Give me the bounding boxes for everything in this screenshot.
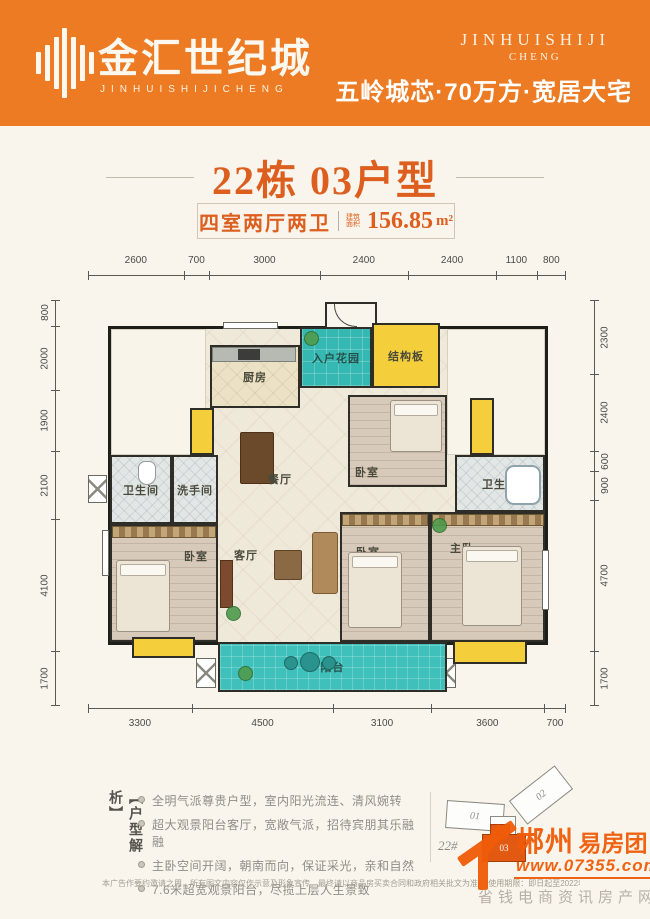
bullet-marker-icon bbox=[138, 796, 145, 803]
dim-value: 2600 bbox=[125, 255, 147, 266]
tv-cabinet bbox=[220, 560, 233, 608]
watermark-brand-part2: 易房团 bbox=[578, 830, 647, 856]
dimension-strip-left: 80020001900210041001700 bbox=[34, 300, 56, 706]
room-label: 卧室 bbox=[184, 548, 208, 564]
balcony-table-icon bbox=[300, 652, 320, 672]
dim-value: 3000 bbox=[253, 255, 275, 266]
dim-segment: 700 bbox=[184, 254, 210, 276]
area-caption-line2: 面积 bbox=[346, 221, 360, 228]
building-logo-icon bbox=[36, 24, 94, 102]
dim-value: 2400 bbox=[353, 255, 375, 266]
dim-segment: 2400 bbox=[594, 374, 616, 451]
bullet-text: 主卧空间开阔，朝南而向，保证采光，亲和自然 bbox=[152, 857, 415, 874]
window-left bbox=[102, 530, 109, 576]
analysis-bullet: 主卧空间开阔，朝南而向，保证采光，亲和自然 bbox=[138, 857, 426, 874]
plant-icon bbox=[304, 331, 319, 346]
dim-segment: 800 bbox=[537, 254, 566, 276]
brand-line2: CHENG bbox=[461, 51, 610, 63]
analysis-bullet: 超大观景阳台客厅，宽敞气派，招待宾朋其乐融融 bbox=[138, 816, 426, 850]
header-banner: 金汇世纪城 JINHUISHIJICHENG JINHUISHIJI CHENG… bbox=[0, 0, 650, 126]
bed-top-bedroom bbox=[390, 400, 442, 452]
dim-segment: 900 bbox=[594, 471, 616, 500]
dim-segment: 1700 bbox=[34, 651, 56, 706]
dim-value: 2400 bbox=[600, 402, 611, 424]
flower-box-left bbox=[132, 637, 195, 658]
bed-master-bedroom bbox=[462, 546, 522, 626]
window-right bbox=[542, 550, 549, 610]
ac-unit-bottom-left-icon bbox=[196, 658, 216, 688]
unit-summary-box: 四室两厅两卫 建筑 面积 156.85 m² bbox=[197, 203, 455, 239]
area-unit: m² bbox=[436, 213, 453, 230]
advert-page: 金汇世纪城 JINHUISHIJICHENG JINHUISHIJI CHENG… bbox=[0, 0, 650, 919]
dimension-strip-bottom: 3300450031003600700 bbox=[88, 708, 566, 730]
dim-value: 2100 bbox=[40, 474, 51, 496]
bullet-marker-icon bbox=[138, 861, 145, 868]
title-row: 22栋 03户型 bbox=[0, 148, 650, 206]
dim-segment: 1900 bbox=[34, 390, 56, 451]
area-value: 156.85 bbox=[367, 208, 433, 235]
wardrobe-left-bedroom bbox=[112, 526, 216, 538]
bed-middle-bedroom bbox=[348, 552, 402, 628]
dim-value: 700 bbox=[188, 255, 205, 266]
dim-value: 4700 bbox=[600, 564, 611, 586]
dim-value: 1100 bbox=[506, 255, 528, 266]
site-watermark: 郴州 易房团 www.07355.com 省钱电商资讯房产网 bbox=[440, 812, 650, 908]
area-caption: 建筑 面积 bbox=[346, 214, 360, 228]
dim-value: 800 bbox=[543, 255, 560, 266]
plant-icon bbox=[432, 518, 447, 533]
flower-box-right bbox=[453, 640, 527, 664]
plant-icon bbox=[226, 606, 241, 621]
analysis-divider bbox=[430, 792, 431, 862]
watermark-brand: 郴州 易房团 bbox=[516, 820, 647, 860]
room-label-dining: 餐厅 bbox=[268, 471, 292, 487]
plant-icon bbox=[238, 666, 253, 681]
dim-value: 1700 bbox=[600, 667, 611, 689]
ac-unit-left-icon bbox=[88, 475, 107, 503]
watermark-brand-part1: 郴州 bbox=[516, 826, 574, 857]
room-label: 卫生间 bbox=[123, 482, 159, 498]
dim-value: 3100 bbox=[371, 718, 393, 729]
dim-segment: 2400 bbox=[408, 254, 496, 276]
room-label: 入户花园 bbox=[312, 350, 360, 366]
dim-value: 2300 bbox=[600, 326, 611, 348]
summary-divider bbox=[338, 211, 339, 231]
dim-segment: 1700 bbox=[594, 651, 616, 706]
dim-segment: 3000 bbox=[209, 254, 319, 276]
page-title: 22栋 03户型 bbox=[212, 148, 438, 206]
brand-line1: JINHUISHIJI bbox=[461, 30, 610, 50]
dim-segment: 600 bbox=[594, 451, 616, 470]
brand-wordmark: JINHUISHIJI CHENG bbox=[461, 30, 610, 63]
sofa bbox=[312, 532, 338, 594]
room-washroom: 洗手间 bbox=[172, 455, 218, 524]
dim-value: 700 bbox=[547, 718, 564, 729]
area-caption-line1: 建筑 bbox=[346, 214, 360, 221]
dim-segment: 800 bbox=[34, 300, 56, 326]
room-label: 厨房 bbox=[243, 369, 267, 385]
watermark-url: www.07355.com bbox=[514, 856, 650, 879]
dim-value: 2400 bbox=[441, 255, 463, 266]
room-label: 洗手间 bbox=[177, 482, 213, 498]
dim-segment: 2000 bbox=[34, 326, 56, 390]
project-name-en: JINHUISHIJICHENG bbox=[100, 84, 289, 95]
dim-segment: 4100 bbox=[34, 519, 56, 651]
analysis-bullet: 全明气派尊贵户型，室内阳光流连、清风婉转 bbox=[138, 792, 426, 809]
room-count-label: 四室两厅两卫 bbox=[199, 207, 331, 236]
dim-value: 2000 bbox=[40, 347, 51, 369]
bullet-text: 超大观景阳台客厅，宽敞气派，招待宾朋其乐融融 bbox=[152, 816, 426, 850]
dim-value: 3300 bbox=[129, 718, 151, 729]
watermark-slogan: 省钱电商资讯房产网 bbox=[478, 886, 650, 907]
coffee-table bbox=[274, 550, 302, 580]
room-label: 结构板 bbox=[388, 348, 424, 364]
dimension-strip-top: 26007003000240024001100800 bbox=[88, 254, 566, 276]
project-name-cn: 金汇世纪城 bbox=[98, 26, 313, 84]
wardrobe-middle-bedroom bbox=[342, 514, 428, 526]
dim-value: 800 bbox=[40, 305, 51, 322]
title-flourish-right bbox=[456, 177, 544, 178]
dim-segment: 700 bbox=[544, 708, 566, 730]
bullet-marker-icon bbox=[138, 820, 145, 827]
dimension-strip-right: 2300240060090047001700 bbox=[594, 300, 616, 706]
dim-value: 4500 bbox=[251, 718, 273, 729]
dim-value: 1900 bbox=[40, 410, 51, 432]
toilet bbox=[138, 461, 156, 485]
dim-segment: 2600 bbox=[88, 254, 184, 276]
dim-segment: 2300 bbox=[594, 300, 616, 374]
header-tagline: 五岭城芯·70万方·宽居大宅 bbox=[335, 72, 632, 107]
dim-segment: 4700 bbox=[594, 500, 616, 651]
room-label-living: 客厅 bbox=[234, 547, 258, 563]
dim-value: 1700 bbox=[40, 667, 51, 689]
dim-value: 3600 bbox=[476, 718, 498, 729]
balcony-chair-icon bbox=[284, 656, 298, 670]
ac-platform-left bbox=[190, 408, 214, 455]
bullet-text: 全明气派尊贵户型，室内阳光流连、清风婉转 bbox=[152, 792, 402, 809]
ac-platform-right bbox=[470, 398, 494, 455]
dim-value: 600 bbox=[600, 453, 611, 470]
title-flourish-left bbox=[106, 177, 194, 178]
dim-segment: 2400 bbox=[320, 254, 408, 276]
exterior-void-top-right bbox=[447, 329, 545, 455]
balcony-chair-icon bbox=[322, 656, 336, 670]
dim-segment: 1100 bbox=[496, 254, 536, 276]
bathtub bbox=[505, 465, 541, 505]
floor-plan: 厨房 入户花园 结构板 卧室 卫生间 主卧 卧室 卧室 卫生间 洗手间 阳台 bbox=[88, 298, 566, 700]
dim-segment: 3100 bbox=[333, 708, 430, 730]
room-label: 卧室 bbox=[355, 464, 379, 480]
dim-segment: 4500 bbox=[192, 708, 334, 730]
dim-segment: 2100 bbox=[34, 451, 56, 519]
room-structure-slab: 结构板 bbox=[372, 323, 440, 388]
bed-left-bedroom bbox=[116, 560, 170, 632]
stove-icon bbox=[238, 349, 260, 360]
dim-segment: 3300 bbox=[88, 708, 192, 730]
window-top bbox=[223, 322, 278, 329]
dim-value: 900 bbox=[600, 477, 611, 494]
wardrobe-master-bedroom bbox=[432, 514, 544, 526]
dim-segment: 3600 bbox=[431, 708, 544, 730]
dim-value: 4100 bbox=[40, 574, 51, 596]
